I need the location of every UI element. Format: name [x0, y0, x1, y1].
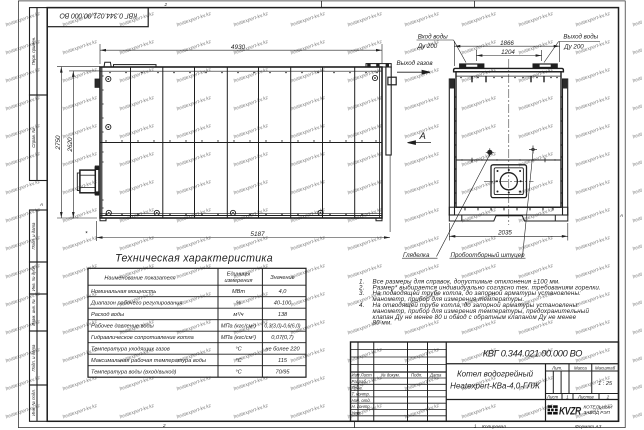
svg-text:1204: 1204	[501, 49, 515, 56]
svg-text:КВГ 0.344.021.00.000 ВО: КВГ 0.344.021.00.000 ВО	[483, 349, 582, 359]
svg-text:клапан Ду не менее 80 и обвод: клапан Ду не менее 80 и обвод с обратным…	[373, 314, 577, 321]
svg-text:Взам. инв. №: Взам. инв. №	[31, 299, 36, 326]
svg-text:Ду 200: Ду 200	[563, 44, 584, 51]
svg-text:0,3(3,0)-0,6(6,0): 0,3(3,0)-0,6(6,0)	[264, 324, 300, 330]
svg-text:Масштаб: Масштаб	[595, 365, 616, 370]
svg-text:70/95: 70/95	[276, 370, 291, 376]
svg-text:Утв.: Утв.	[352, 411, 362, 416]
svg-text:Техническая характеристика: Техническая характеристика	[115, 253, 273, 265]
svg-text:Котел водогрейный: Котел водогрейный	[457, 369, 534, 378]
svg-text:Дата: Дата	[429, 373, 442, 378]
svg-text:80 мм.: 80 мм.	[373, 320, 393, 327]
svg-text:Подп. и дата: Подп. и дата	[31, 222, 36, 250]
svg-text:138: 138	[278, 312, 288, 318]
svg-text:А: А	[39, 202, 43, 207]
svg-text:5187: 5187	[250, 231, 265, 238]
svg-text:Единицы: Единицы	[227, 271, 250, 277]
svg-text:Лист: Лист	[546, 394, 558, 399]
svg-text:Разраб.: Разраб.	[352, 379, 368, 384]
svg-text:Выход газов: Выход газов	[397, 60, 434, 67]
svg-text:Максимальная рабочая температу: Максимальная рабочая температура воды	[91, 358, 206, 364]
svg-text:2: 2	[162, 423, 166, 428]
svg-text:°С: °С	[235, 358, 242, 364]
svg-text:А: А	[619, 213, 623, 218]
svg-text:ЗАВОД РЭП: ЗАВОД РЭП	[584, 410, 611, 415]
svg-text:Диапазон рабочего регулировани: Диапазон рабочего регулирования	[90, 301, 182, 307]
svg-text:Копировал: Копировал	[482, 424, 506, 430]
svg-text:Гидравлическое сопротивление к: Гидравлическое сопротивление котла	[91, 335, 194, 341]
svg-text:Номинальная мощность: Номинальная мощность	[91, 289, 156, 295]
svg-text:1866: 1866	[500, 40, 514, 47]
svg-text:Формат А3: Формат А3	[575, 424, 602, 430]
svg-text:Инв. № дубл.: Инв. № дубл.	[31, 265, 36, 291]
svg-text:МВт: МВт	[232, 289, 245, 295]
svg-text:Справ. №: Справ. №	[31, 128, 36, 148]
svg-text:2750: 2750	[55, 135, 62, 151]
svg-text:Значение: Значение	[270, 275, 295, 281]
svg-text:Расход воды: Расход воды	[91, 312, 124, 318]
svg-text:Пров.: Пров.	[352, 385, 363, 390]
svg-text:Н. контр.: Н. контр.	[352, 404, 371, 409]
svg-text:2035: 2035	[497, 230, 512, 237]
svg-text:м³/ч: м³/ч	[233, 312, 243, 318]
svg-text:2620: 2620	[67, 137, 74, 153]
svg-text:%: %	[236, 301, 241, 307]
svg-text:КВГ 0.344.021.00.000 ВО: КВГ 0.344.021.00.000 ВО	[59, 11, 137, 18]
svg-text:Температура воды (вход/выход): Температура воды (вход/выход)	[91, 370, 177, 376]
svg-text:°С: °С	[235, 370, 242, 376]
svg-text:Лит.: Лит.	[551, 365, 562, 370]
svg-text:Подп.: Подп.	[411, 373, 422, 378]
svg-text:Изм Лист: Изм Лист	[352, 373, 373, 378]
svg-text:Листов: Листов	[577, 394, 594, 399]
svg-text:Вход воды: Вход воды	[418, 34, 448, 41]
svg-text:1 : 25: 1 : 25	[598, 381, 613, 387]
svg-text:Рабочее давление воды: Рабочее давление воды	[91, 324, 154, 330]
svg-text:Выход воды: Выход воды	[563, 34, 598, 41]
svg-text:КОТЕЛЬНЫЙ: КОТЕЛЬНЫЙ	[584, 403, 614, 410]
svg-text:Ду 200: Ду 200	[417, 43, 438, 50]
svg-text:Нач. отд.: Нач. отд.	[352, 398, 371, 403]
svg-text:Т. контр.: Т. контр.	[352, 392, 371, 397]
svg-text:°С: °С	[235, 347, 242, 353]
svg-text:2: 2	[164, 2, 168, 7]
svg-text:№ докум.: № докум.	[381, 373, 400, 378]
svg-text:не более 220: не более 220	[265, 347, 300, 353]
svg-text:0,07(0,7): 0,07(0,7)	[271, 335, 294, 341]
svg-text:4.: 4.	[359, 302, 364, 309]
svg-text:Гляделка: Гляделка	[403, 252, 430, 259]
svg-text:Подп. и дата: Подп. и дата	[31, 344, 36, 372]
svg-text:40-100: 40-100	[274, 301, 292, 307]
svg-text:МПа (кгс/см²): МПа (кгс/см²)	[221, 335, 256, 341]
svg-text:Heatexpert-КВа-4,0-ГЛЖ: Heatexpert-КВа-4,0-ГЛЖ	[450, 382, 540, 391]
svg-text:измерения: измерения	[225, 278, 253, 284]
svg-text:KVZR: KVZR	[559, 405, 582, 417]
svg-text:Перв. примен.: Перв. примен.	[31, 37, 36, 66]
svg-text:Наименование показателя: Наименование показателя	[104, 276, 175, 282]
svg-text:Температура уходящих газов: Температура уходящих газов	[91, 347, 170, 353]
svg-text:3.: 3.	[359, 290, 364, 297]
svg-text:Пробоотборный штуцер: Пробоотборный штуцер	[451, 252, 526, 259]
svg-text:4,0: 4,0	[279, 289, 288, 295]
svg-text:А: А	[419, 131, 426, 142]
svg-text:МПа (кгс/см²): МПа (кгс/см²)	[221, 324, 256, 330]
svg-text:Инв. № подл.: Инв. № подл.	[31, 389, 36, 416]
svg-text:115: 115	[278, 358, 288, 364]
svg-text:Масса: Масса	[574, 365, 587, 370]
svg-text:4930: 4930	[231, 44, 246, 51]
